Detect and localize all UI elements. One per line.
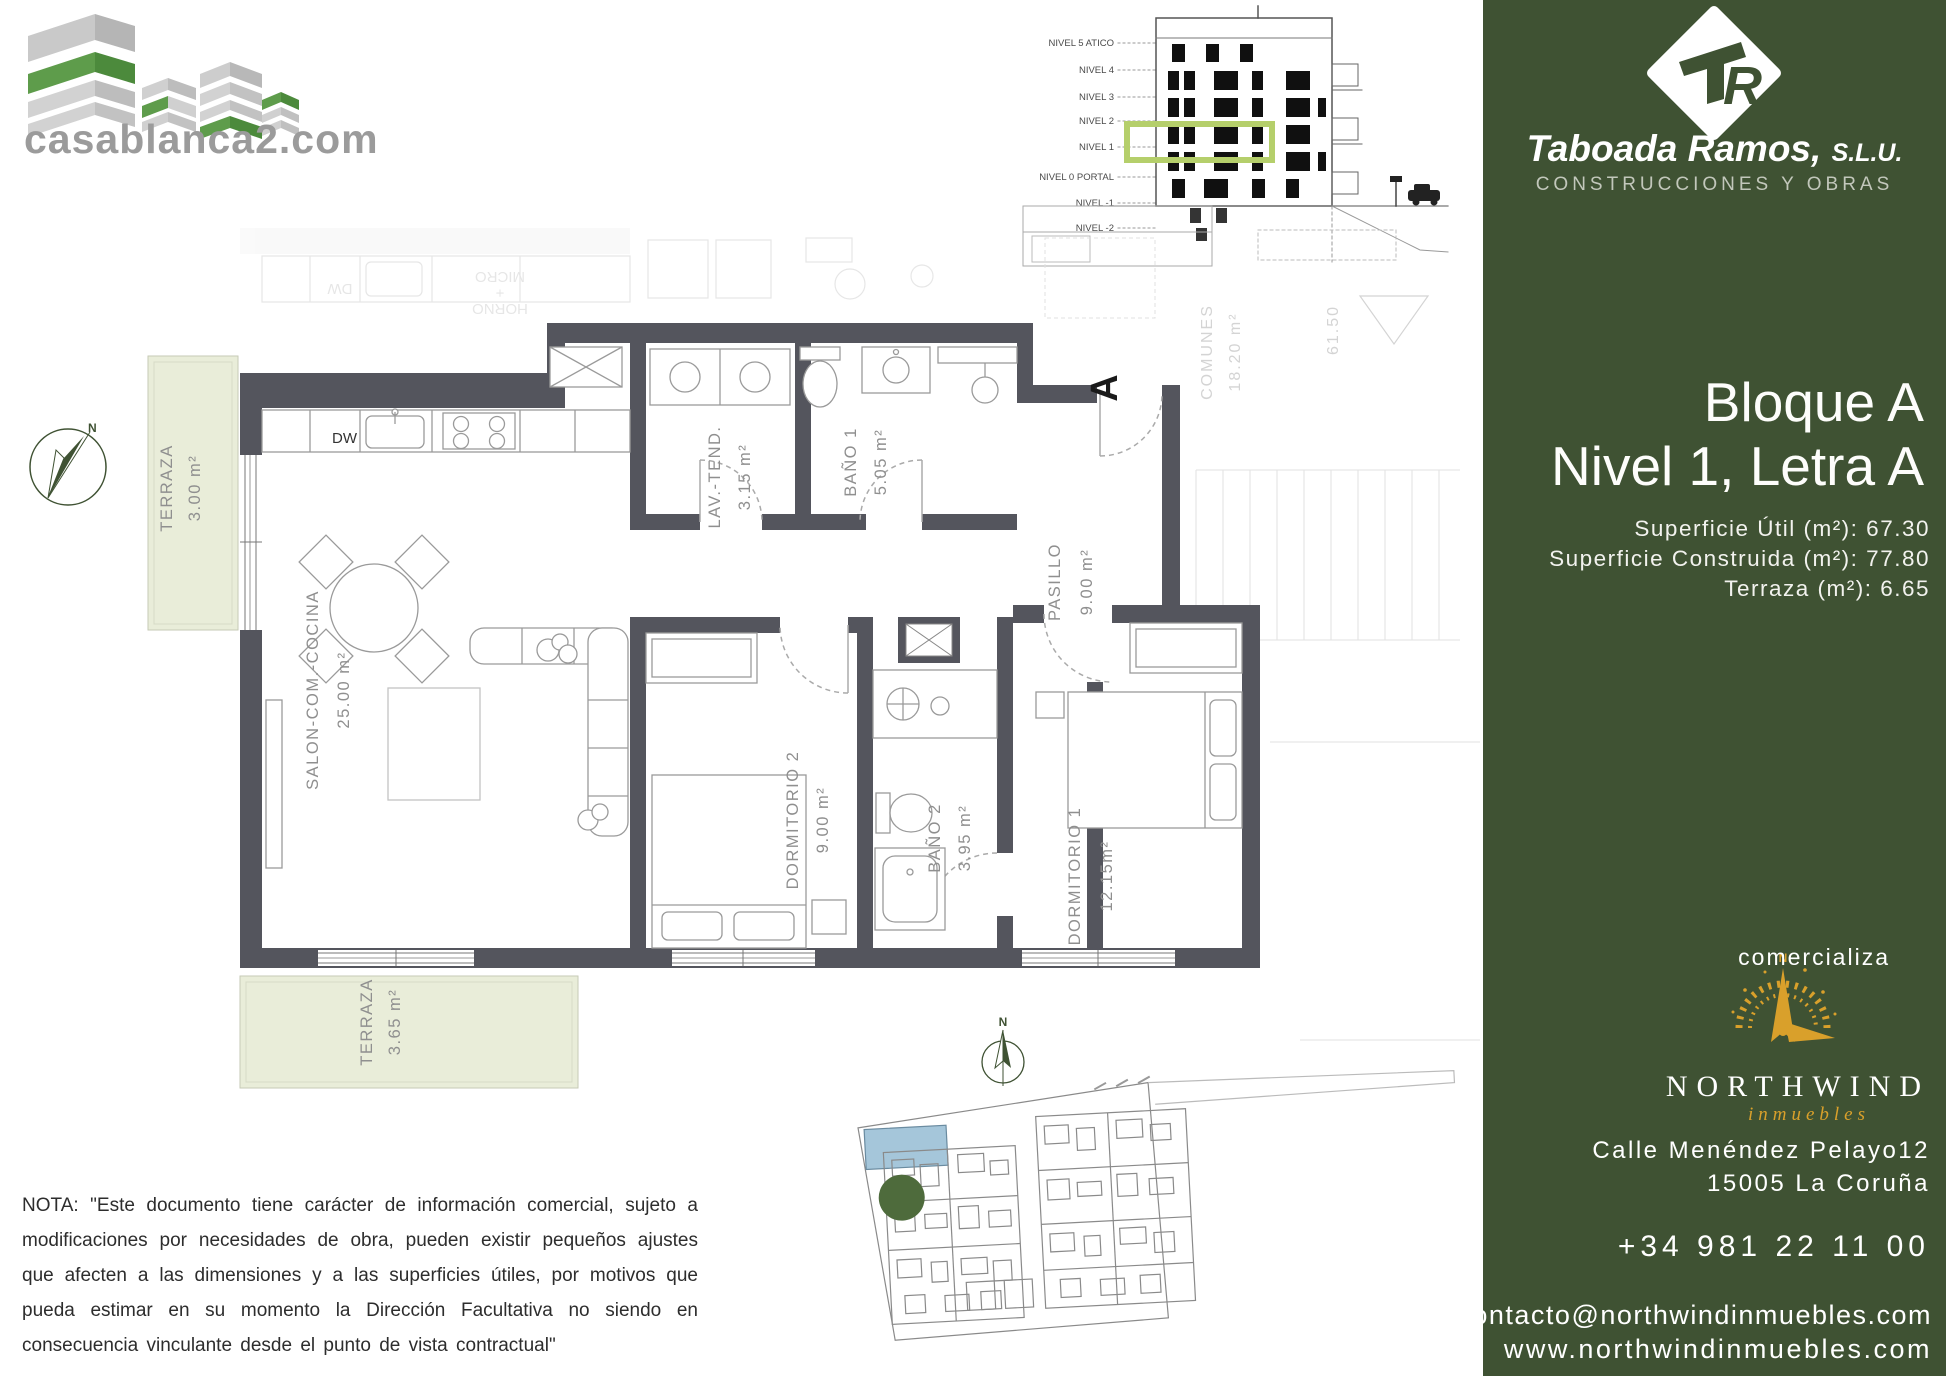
dw-label: DW: [332, 430, 358, 447]
builder-tagline: CONSTRUCCIONES Y OBRAS: [1483, 174, 1946, 196]
comunes-label: COMUNES: [1199, 304, 1216, 400]
builder-name: Taboada Ramos, S.L.U.: [1483, 128, 1946, 170]
agency-phone: +34 981 22 11 00: [1618, 1230, 1930, 1264]
common-zone-faded: COMUNES 18.20 m² 61.50: [1045, 238, 1480, 1040]
legal-note: NOTA: "Este documento tiene carácter de …: [22, 1188, 698, 1363]
faded-micro-label: MICRO: [475, 268, 525, 285]
sidebar: R N Taboada Ramos, S.L.U. CONSTRUCCIONES…: [1483, 0, 1946, 1376]
level-label: NIVEL 3: [1079, 92, 1114, 103]
site-plan: N: [856, 1015, 1466, 1342]
site-compass-icon: N: [982, 1015, 1024, 1086]
area-util: Superficie Útil (m²): 67.30: [1549, 514, 1930, 544]
level-mark-label: 61.50: [1325, 305, 1342, 355]
room-label-dorm2: DORMITORIO 2: [784, 751, 802, 890]
address-line1: Calle Menéndez Pelayo12: [1592, 1134, 1930, 1167]
room-label-bano2: BAÑO 2: [924, 803, 944, 873]
unit-level-letter: Nivel 1, Letra A: [1551, 434, 1924, 498]
room-label-terraza1: TERRAZA: [158, 444, 176, 532]
room-area-pasillo: 9.00 m²: [1078, 549, 1096, 615]
faded-horno-label: HORNO: [472, 300, 528, 317]
unit-block: Bloque A: [1551, 370, 1924, 434]
elevation-drawing: NIVEL 5 ATICO NIVEL 4 NIVEL 3 NIVEL 2 NI…: [1023, 6, 1448, 266]
address-line2: 15005 La Coruña: [1592, 1167, 1930, 1200]
plan-compass-icon: N: [30, 421, 106, 505]
level-label: NIVEL 5 ATICO: [1049, 38, 1114, 49]
level-label: NIVEL 1: [1079, 142, 1114, 153]
room-area-bano2: 3.95 m²: [956, 805, 974, 871]
level-label: NIVEL 4: [1079, 65, 1114, 76]
faded-plus-label: +: [495, 284, 504, 301]
comunes-area-label: 18.20 m²: [1227, 312, 1244, 391]
compass-n-label: N: [88, 421, 97, 435]
room-area-terraza1: 3.00 m²: [186, 455, 204, 521]
level-label: NIVEL -1: [1076, 198, 1114, 209]
room-area-salon: 25.00 m²: [335, 651, 353, 728]
room-label-lav: LAV.-TEND.: [706, 425, 724, 528]
agency-subname: inmuebles: [1748, 1104, 1870, 1126]
taboada-ramos-logo-icon: R: [1652, 11, 1776, 135]
flyer-page: NIVEL 5 ATICO NIVEL 4 NIVEL 3 NIVEL 2 NI…: [0, 0, 1946, 1376]
room-area-terraza2: 3.65 m²: [386, 989, 404, 1055]
agency-address: Calle Menéndez Pelayo12 15005 La Coruña: [1592, 1134, 1930, 1200]
area-terraza: Terraza (m²): 6.65: [1549, 574, 1930, 604]
site-compass-n-label: N: [999, 1015, 1008, 1029]
room-label-pasillo: PASILLO: [1046, 543, 1064, 621]
car-icon: [1390, 176, 1440, 206]
terraces: [148, 356, 578, 1088]
room-area-lav: 3.15 m²: [736, 444, 754, 510]
agency-email: contacto@northwindinmuebles.com: [1457, 1300, 1932, 1331]
room-area-bano1: 5.05 m²: [872, 429, 890, 495]
room-label-bano1: BAÑO 1: [840, 427, 860, 497]
unit-areas: Superficie Útil (m²): 67.30 Superficie C…: [1549, 514, 1930, 604]
room-area-dorm2: 9.00 m²: [814, 787, 832, 853]
neighbour-apartment-faded: DW MICRO + HORNO: [240, 228, 933, 317]
casablanca-logo-text: casablanca2.com: [24, 116, 379, 163]
duct-shaft: [906, 624, 952, 656]
agency-name: NORTHWIND: [1666, 1070, 1930, 1104]
room-label-dorm1: DORMITORIO 1: [1066, 807, 1084, 946]
tr-monogram: R: [1723, 56, 1762, 116]
faded-dw-label: DW: [327, 280, 353, 297]
room-area-dorm1: 12.15m²: [1098, 840, 1116, 911]
unit-title: Bloque A Nivel 1, Letra A: [1551, 370, 1924, 498]
room-label-terraza2: TERRAZA: [358, 978, 376, 1066]
level-label: NIVEL 0 PORTAL: [1039, 172, 1114, 183]
agency-intro: comercializa: [1738, 944, 1890, 971]
agency-website: www.northwindinmuebles.com: [1504, 1334, 1932, 1365]
room-label-salon: SALON-COM.-COCINA: [304, 590, 322, 790]
main-artwork: NIVEL 5 ATICO NIVEL 4 NIVEL 3 NIVEL 2 NI…: [0, 0, 1483, 1376]
entrance-letter: A: [1084, 374, 1126, 401]
area-construida: Superficie Construida (m²): 77.80: [1549, 544, 1930, 574]
level-label: NIVEL 2: [1079, 116, 1114, 127]
